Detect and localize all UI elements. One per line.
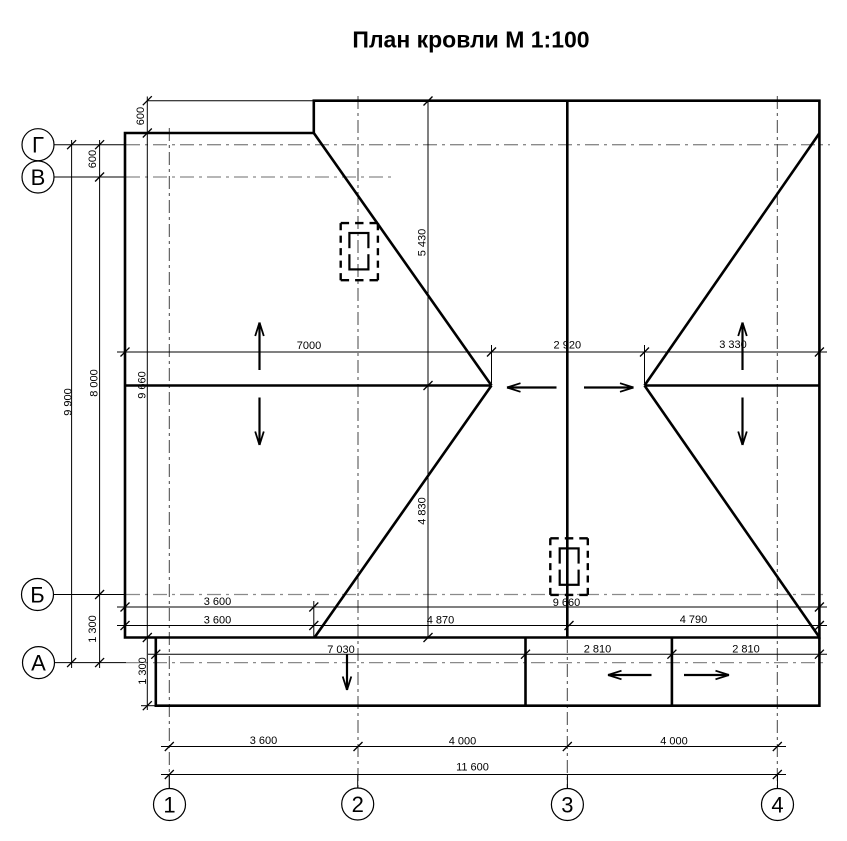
svg-text:3 600: 3 600	[250, 735, 278, 747]
svg-text:Б: Б	[30, 582, 44, 607]
svg-text:1: 1	[163, 792, 175, 817]
svg-text:600: 600	[135, 107, 147, 125]
svg-text:4 000: 4 000	[449, 736, 477, 748]
svg-text:5 430: 5 430	[417, 229, 429, 257]
svg-text:Г: Г	[32, 133, 44, 158]
svg-text:7000: 7000	[297, 340, 321, 352]
svg-text:7 030: 7 030	[327, 644, 355, 656]
svg-text:3 600: 3 600	[204, 615, 232, 627]
svg-text:4: 4	[771, 792, 783, 817]
svg-text:4 870: 4 870	[427, 615, 455, 627]
svg-text:План кровли М 1:100: План кровли М 1:100	[352, 27, 589, 53]
svg-text:2 810: 2 810	[584, 644, 612, 656]
svg-text:600: 600	[87, 150, 99, 168]
svg-text:11 600: 11 600	[456, 762, 489, 774]
svg-text:3 600: 3 600	[204, 596, 232, 608]
svg-text:4 790: 4 790	[680, 614, 708, 626]
svg-text:1 300: 1 300	[137, 657, 149, 685]
svg-text:А: А	[31, 651, 46, 676]
svg-text:2: 2	[352, 792, 364, 817]
svg-text:1 300: 1 300	[87, 615, 99, 643]
svg-text:9 900: 9 900	[62, 388, 74, 416]
svg-text:2 810: 2 810	[732, 644, 760, 656]
svg-text:4 000: 4 000	[660, 736, 688, 748]
svg-text:8 000: 8 000	[89, 369, 101, 397]
svg-text:2 920: 2 920	[554, 340, 582, 352]
svg-text:9 660: 9 660	[553, 597, 581, 609]
svg-text:4 830: 4 830	[417, 497, 429, 525]
svg-text:3: 3	[561, 792, 573, 817]
svg-text:В: В	[31, 165, 46, 190]
svg-text:9 660: 9 660	[137, 371, 149, 399]
svg-text:3 330: 3 330	[719, 339, 747, 351]
